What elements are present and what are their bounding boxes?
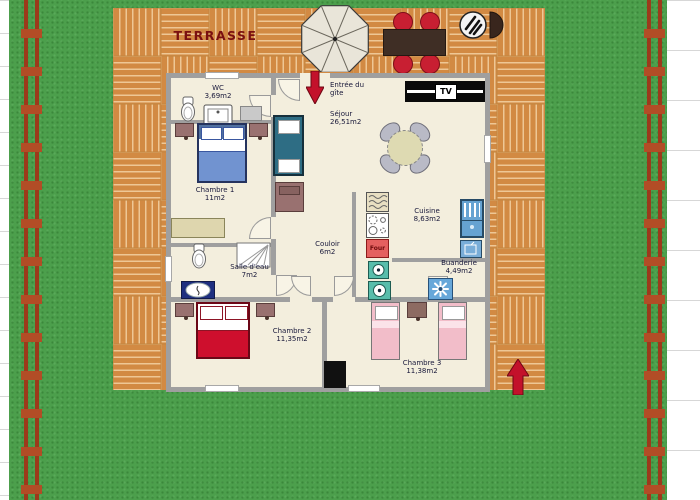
deck-tile [497,152,545,200]
room-label-chambre1: Chambre 1 11m2 [186,186,244,203]
room-name: Cuisine [403,207,451,215]
room-name: WC [196,84,240,92]
nightstand [249,123,268,137]
room-area: 8,63m2 [403,215,451,223]
bed-fold [439,321,466,328]
toilet-icon [179,96,197,122]
canvas-margin-right [667,0,700,500]
cooktop-icon [366,213,389,238]
terrace-label: TERRASSE [168,28,263,43]
patio-chair [393,54,413,74]
kitchen-sink-icon [460,240,482,258]
oven: Four [366,239,389,258]
nightstand [407,302,427,318]
deck-tile [113,200,161,248]
dining-table-set [376,121,434,175]
fence-right [644,0,665,500]
room-name: Séjour [330,110,380,118]
oven-label: Four [370,245,385,252]
parasol-icon [297,2,373,72]
deck-tile [113,8,161,56]
room-label-wc: WC 3,69m2 [196,84,240,101]
deck-tile [113,56,161,104]
fridge-divider [462,220,482,221]
deck-tile [113,344,161,390]
washing-machine-icon [368,261,389,279]
pillow [375,306,398,320]
fridge-handle [470,225,474,229]
deck-tile [113,296,161,344]
tv-label: TV [435,84,457,100]
patio-chair [420,54,440,74]
pillow [200,306,223,320]
room-name: Couloir [305,240,350,248]
fridge-grill [464,203,480,217]
patio-table [383,29,446,56]
entrance-arrow-icon [306,71,324,104]
deck-tile [113,248,161,296]
pillow [225,306,248,320]
room-area: 3,69m2 [196,92,240,100]
fence-left [21,0,42,500]
room-name: Chambre 1 [186,186,244,194]
canvas-margin-left [0,0,9,500]
room-area: 11m2 [186,194,244,202]
interior-wall [271,78,276,95]
armchair-cushion [279,186,300,195]
room-area: 26,51m2 [330,118,380,126]
kitchen-counter-icon [366,192,389,212]
window [205,385,239,392]
sofa [273,115,304,176]
window [165,256,172,282]
room-name: Buanderie [433,259,485,267]
cabinet [240,106,262,121]
deck-tile [497,296,545,344]
single-bed [438,302,467,360]
room-name: Chambre 3 [392,359,452,367]
fireplace [324,361,346,388]
sofa-pillow [278,120,300,134]
double-bed-chambre1 [197,123,247,183]
bed-blanket [198,330,248,357]
room-area: 11,35m2 [262,335,322,343]
pillow [442,306,465,320]
pillow [223,127,244,140]
room-name: Salle d'eau [222,263,277,271]
single-bed [371,302,400,360]
nightstand [256,303,275,317]
vanity-sink-icon [181,281,215,299]
bed-blanket [199,151,245,181]
water-heater-icon [428,278,453,300]
room-label-sejour: Séjour 26,51m2 [330,110,380,127]
room-label-salle-eau: Salle d'eau 7m2 [222,263,277,280]
room-area: 6m2 [305,248,350,256]
nightstand [175,303,194,317]
room-label-buanderie: Buanderie 4,49m2 [433,259,485,276]
deck-tile [497,248,545,296]
bbq-icon [458,9,506,43]
room-label-cuisine: Cuisine 8,63m2 [403,207,451,224]
room-label-couloir: Couloir 6m2 [305,240,350,257]
deck-tile [113,152,161,200]
room-label-chambre2: Chambre 2 11,35m2 [262,327,322,344]
room-area: 11,38m2 [392,367,452,375]
fridge-icon [460,199,484,238]
wardrobe [171,218,225,238]
dryer-icon [368,281,391,300]
window [484,135,491,163]
window [348,385,380,392]
nightstand [175,123,194,137]
pillow [201,127,222,140]
deck-tile [497,104,545,152]
toilet-icon [190,243,208,269]
sofa-pillow [278,159,300,173]
deck-tile [113,104,161,152]
double-bed-chambre2 [196,302,250,359]
exit-arrow-icon [507,359,529,395]
armchair [275,182,304,212]
window [205,72,239,79]
deck-tile [497,200,545,248]
room-area: 4,49m2 [433,267,485,275]
room-name: Chambre 2 [262,327,322,335]
bed-fold [372,321,399,328]
room-label-chambre3: Chambre 3 11,38m2 [392,359,452,376]
entrance-label: Entrée du gîte [330,81,372,98]
deck-tile [497,56,545,104]
room-area: 7m2 [222,271,277,279]
tv-unit: TV [405,81,485,102]
floor-plan-canvas: TERRASSE [0,0,700,500]
